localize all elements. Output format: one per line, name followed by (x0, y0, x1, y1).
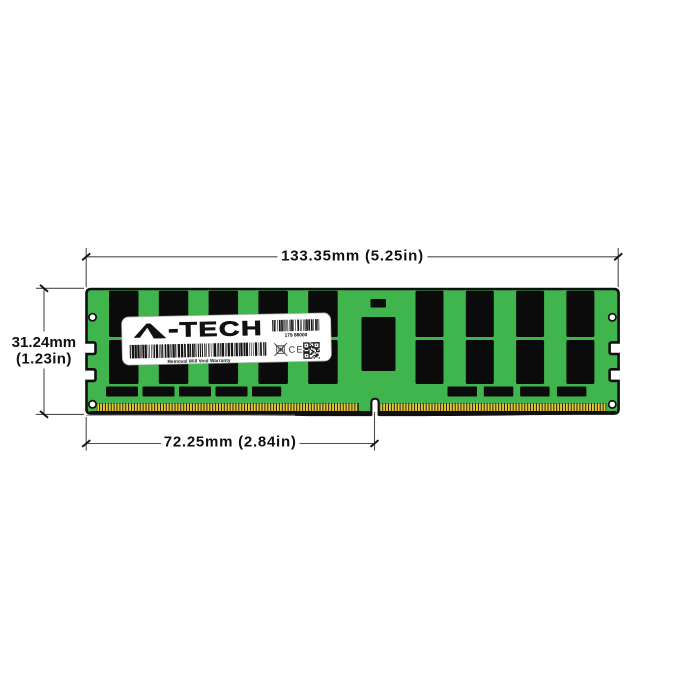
svg-text:(1.23in): (1.23in) (16, 350, 72, 367)
svg-text:31.24mm: 31.24mm (12, 334, 77, 351)
svg-text:72.25mm (2.84in): 72.25mm (2.84in) (164, 434, 297, 451)
svg-text:TECH: TECH (179, 317, 263, 342)
svg-text:CE: CE (288, 344, 303, 354)
svg-text:179 88000: 179 88000 (285, 332, 308, 338)
svg-text:133.35mm (5.25in): 133.35mm (5.25in) (281, 247, 424, 264)
